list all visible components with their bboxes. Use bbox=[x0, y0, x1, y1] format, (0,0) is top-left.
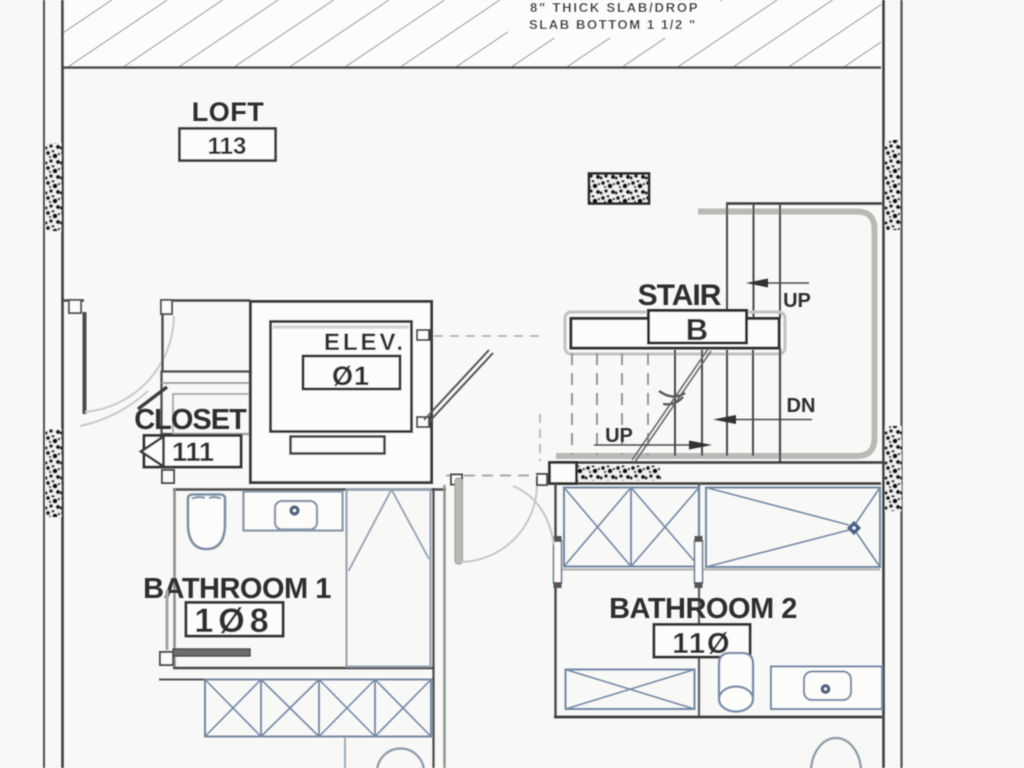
svg-text:BATHROOM 2: BATHROOM 2 bbox=[609, 593, 797, 625]
svg-text:BATHROOM 1: BATHROOM 1 bbox=[143, 573, 331, 605]
svg-text:DN: DN bbox=[787, 395, 816, 417]
svg-text:1Ø8: 1Ø8 bbox=[194, 602, 273, 640]
svg-text:8" THICK SLAB/DROP: 8" THICK SLAB/DROP bbox=[530, 0, 699, 15]
svg-text:STAIR: STAIR bbox=[638, 279, 722, 312]
svg-text:B: B bbox=[686, 312, 708, 347]
svg-text:111: 111 bbox=[172, 437, 214, 467]
svg-text:SLAB BOTTOM 1 1/2 ": SLAB BOTTOM 1 1/2 " bbox=[529, 17, 697, 32]
svg-text:Ø1: Ø1 bbox=[332, 361, 370, 391]
svg-text:LOFT: LOFT bbox=[192, 97, 264, 127]
svg-text:113: 113 bbox=[208, 133, 247, 160]
svg-text:UP: UP bbox=[605, 425, 633, 447]
svg-text:CLOSET: CLOSET bbox=[134, 404, 247, 436]
svg-text:ELEV.: ELEV. bbox=[324, 329, 406, 356]
svg-text:UP: UP bbox=[783, 290, 811, 312]
